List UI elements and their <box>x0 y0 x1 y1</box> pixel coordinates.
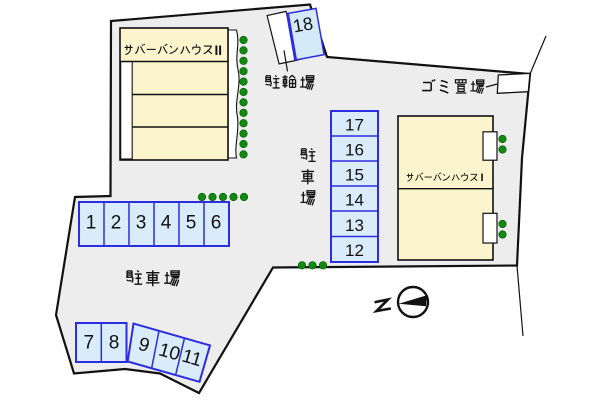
svg-text:18: 18 <box>291 13 314 36</box>
svg-text:5: 5 <box>186 213 197 234</box>
svg-text:15: 15 <box>345 166 364 185</box>
svg-text:12: 12 <box>345 241 364 260</box>
svg-text:13: 13 <box>345 216 364 235</box>
svg-text:3: 3 <box>136 213 147 234</box>
svg-text:I: I <box>481 172 484 184</box>
svg-text:17: 17 <box>345 116 364 135</box>
svg-text:1: 1 <box>86 213 97 234</box>
svg-text:14: 14 <box>345 191 364 210</box>
svg-text:6: 6 <box>211 213 222 234</box>
svg-text:8: 8 <box>109 333 120 354</box>
svg-text:4: 4 <box>161 213 172 234</box>
svg-text:16: 16 <box>345 141 364 160</box>
svg-text:2: 2 <box>111 213 122 234</box>
svg-text:7: 7 <box>84 333 95 354</box>
svg-text:II: II <box>215 43 223 58</box>
